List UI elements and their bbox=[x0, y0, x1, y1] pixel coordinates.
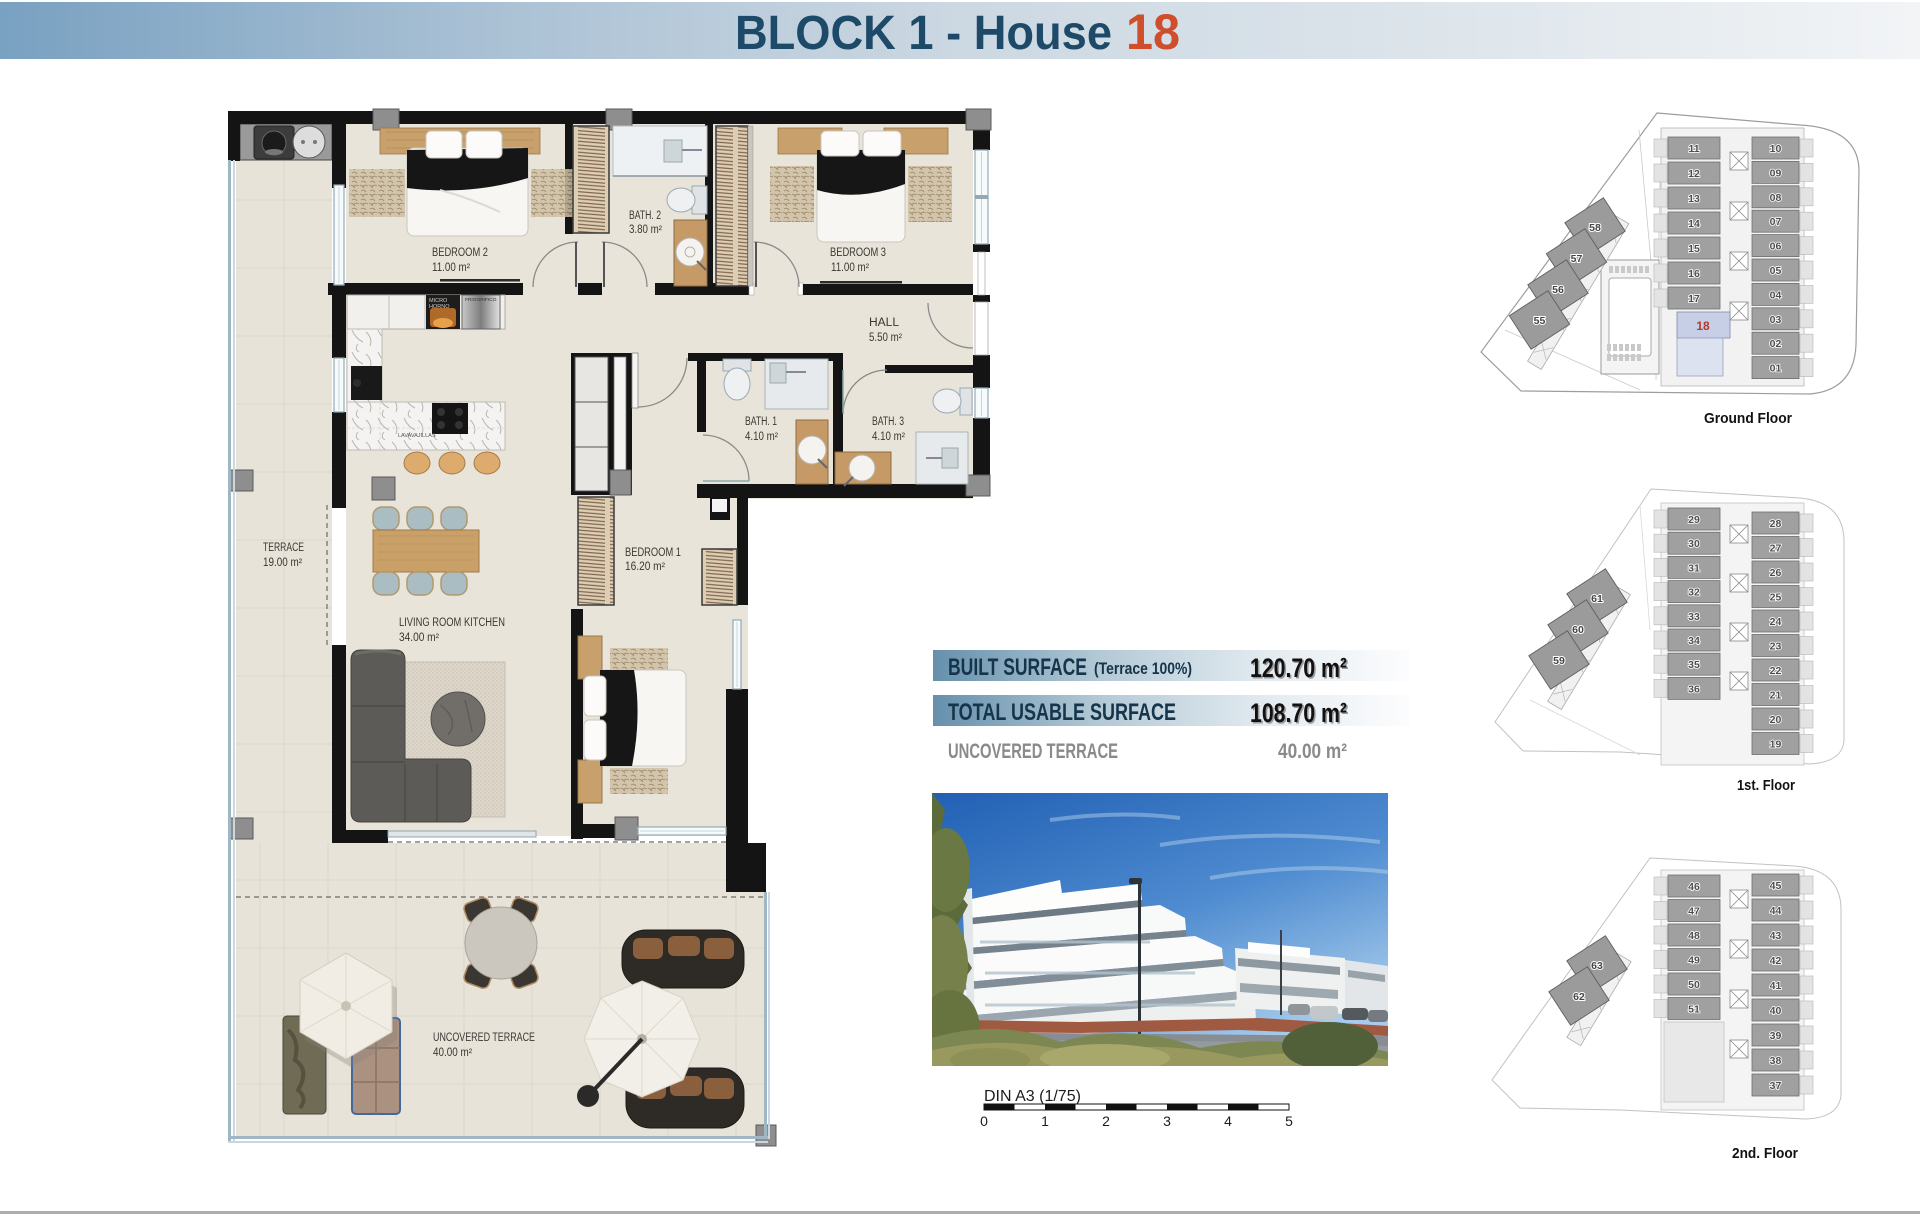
svg-text:10: 10 bbox=[1770, 143, 1782, 155]
svg-text:60: 60 bbox=[1572, 624, 1584, 636]
svg-text:TOTAL USABLE SURFACE: TOTAL USABLE SURFACE bbox=[948, 699, 1176, 726]
svg-text:61: 61 bbox=[1591, 593, 1603, 605]
svg-text:UNCOVERED TERRACE: UNCOVERED TERRACE bbox=[433, 1032, 535, 1044]
svg-text:17: 17 bbox=[1688, 293, 1700, 305]
svg-text:43: 43 bbox=[1770, 930, 1782, 942]
svg-text:23: 23 bbox=[1770, 641, 1782, 653]
svg-text:30: 30 bbox=[1688, 538, 1700, 550]
svg-text:3: 3 bbox=[1163, 1113, 1171, 1129]
svg-text:BEDROOM 1: BEDROOM 1 bbox=[625, 547, 681, 559]
svg-text:48: 48 bbox=[1688, 930, 1700, 942]
svg-text:13: 13 bbox=[1688, 193, 1700, 205]
svg-text:29: 29 bbox=[1688, 514, 1700, 526]
svg-text:04: 04 bbox=[1770, 289, 1782, 301]
svg-text:BATH. 3: BATH. 3 bbox=[872, 416, 904, 428]
svg-text:14: 14 bbox=[1688, 218, 1700, 230]
svg-text:49: 49 bbox=[1688, 955, 1700, 967]
svg-text:20: 20 bbox=[1770, 714, 1782, 726]
svg-text:19: 19 bbox=[1770, 739, 1782, 751]
svg-text:HORNO: HORNO bbox=[429, 304, 450, 310]
svg-text:36: 36 bbox=[1688, 683, 1700, 695]
svg-text:40.00 m²: 40.00 m² bbox=[433, 1047, 472, 1059]
svg-text:63: 63 bbox=[1591, 960, 1603, 972]
svg-text:11: 11 bbox=[1688, 143, 1699, 155]
svg-text:120.70 m²: 120.70 m² bbox=[1250, 653, 1347, 683]
svg-text:50: 50 bbox=[1688, 979, 1700, 991]
svg-text:56: 56 bbox=[1552, 284, 1564, 296]
svg-text:5.50 m²: 5.50 m² bbox=[869, 332, 902, 344]
svg-text:15: 15 bbox=[1688, 243, 1700, 255]
svg-text:TERRACE: TERRACE bbox=[263, 542, 304, 554]
svg-text:22: 22 bbox=[1770, 665, 1782, 677]
svg-text:BATH. 1: BATH. 1 bbox=[745, 416, 777, 428]
svg-text:33: 33 bbox=[1688, 611, 1700, 623]
svg-text:25: 25 bbox=[1770, 592, 1782, 604]
svg-text:05: 05 bbox=[1770, 265, 1782, 277]
svg-text:16.20 m²: 16.20 m² bbox=[625, 561, 665, 573]
svg-text:41: 41 bbox=[1770, 980, 1782, 992]
svg-text:DIN A3 (1/75): DIN A3 (1/75) bbox=[984, 1088, 1081, 1105]
svg-text:LIVING ROOM KITCHEN: LIVING ROOM KITCHEN bbox=[399, 617, 505, 629]
svg-text:40.00 m²: 40.00 m² bbox=[1278, 740, 1347, 763]
svg-text:21: 21 bbox=[1770, 690, 1782, 702]
svg-text:UNCOVERED TERRACE: UNCOVERED TERRACE bbox=[948, 740, 1118, 763]
svg-text:51: 51 bbox=[1688, 1004, 1700, 1016]
svg-text:12: 12 bbox=[1688, 168, 1700, 180]
svg-text:31: 31 bbox=[1688, 562, 1700, 574]
svg-text:38: 38 bbox=[1770, 1055, 1782, 1067]
svg-text:46: 46 bbox=[1688, 881, 1700, 893]
svg-text:5: 5 bbox=[1285, 1113, 1293, 1129]
svg-text:(Terrace 100%): (Terrace 100%) bbox=[1094, 659, 1192, 678]
svg-text:4: 4 bbox=[1224, 1113, 1232, 1129]
svg-text:LAVAVAJILLAS: LAVAVAJILLAS bbox=[398, 433, 436, 439]
svg-text:34.00 m²: 34.00 m² bbox=[399, 632, 439, 644]
svg-text:32: 32 bbox=[1688, 587, 1700, 599]
svg-text:07: 07 bbox=[1770, 216, 1782, 228]
svg-text:2nd. Floor: 2nd. Floor bbox=[1732, 1145, 1798, 1162]
svg-text:27: 27 bbox=[1770, 543, 1782, 555]
svg-text:Ground Floor: Ground Floor bbox=[1704, 410, 1792, 427]
svg-text:11.00 m²: 11.00 m² bbox=[432, 262, 470, 274]
svg-text:11.00 m²: 11.00 m² bbox=[831, 262, 869, 274]
svg-text:44: 44 bbox=[1770, 905, 1782, 917]
svg-text:19.00 m²: 19.00 m² bbox=[263, 557, 302, 569]
svg-text:0: 0 bbox=[980, 1113, 988, 1129]
svg-text:1st. Floor: 1st. Floor bbox=[1737, 777, 1795, 794]
svg-text:16: 16 bbox=[1688, 268, 1700, 280]
svg-text:18: 18 bbox=[1126, 4, 1180, 60]
svg-text:26: 26 bbox=[1770, 567, 1782, 579]
svg-text:4.10 m²: 4.10 m² bbox=[872, 431, 905, 443]
svg-text:45: 45 bbox=[1770, 880, 1782, 892]
svg-text:4.10 m²: 4.10 m² bbox=[745, 431, 778, 443]
svg-text:BEDROOM 3: BEDROOM 3 bbox=[830, 247, 886, 259]
svg-text:39: 39 bbox=[1770, 1030, 1782, 1042]
svg-text:BLOCK 1 - House: BLOCK 1 - House bbox=[735, 7, 1112, 60]
svg-text:01: 01 bbox=[1770, 363, 1782, 375]
svg-text:HALL: HALL bbox=[869, 317, 900, 329]
svg-text:62: 62 bbox=[1573, 991, 1585, 1003]
svg-text:40: 40 bbox=[1770, 1005, 1782, 1017]
svg-text:09: 09 bbox=[1770, 167, 1782, 179]
svg-text:58: 58 bbox=[1589, 222, 1601, 234]
svg-text:37: 37 bbox=[1770, 1080, 1782, 1092]
svg-text:3.80 m²: 3.80 m² bbox=[629, 224, 662, 236]
svg-text:1: 1 bbox=[1041, 1113, 1049, 1129]
svg-text:47: 47 bbox=[1688, 906, 1700, 918]
svg-text:03: 03 bbox=[1770, 314, 1782, 326]
svg-text:2: 2 bbox=[1102, 1113, 1110, 1129]
svg-text:08: 08 bbox=[1770, 192, 1782, 204]
svg-text:02: 02 bbox=[1770, 338, 1782, 350]
svg-text:FRIGORIFICO: FRIGORIFICO bbox=[465, 297, 497, 303]
svg-text:34: 34 bbox=[1688, 635, 1700, 647]
svg-text:06: 06 bbox=[1770, 241, 1782, 253]
svg-text:108.70 m²: 108.70 m² bbox=[1250, 698, 1347, 728]
svg-text:35: 35 bbox=[1688, 659, 1700, 671]
svg-text:42: 42 bbox=[1770, 955, 1782, 967]
svg-text:28: 28 bbox=[1770, 518, 1782, 530]
svg-text:57: 57 bbox=[1571, 253, 1583, 265]
svg-text:BATH. 2: BATH. 2 bbox=[629, 210, 661, 222]
svg-text:59: 59 bbox=[1553, 655, 1565, 667]
svg-text:BEDROOM 2: BEDROOM 2 bbox=[432, 247, 488, 259]
svg-text:BUILT SURFACE: BUILT SURFACE bbox=[948, 654, 1087, 681]
svg-text:55: 55 bbox=[1534, 315, 1546, 327]
svg-text:24: 24 bbox=[1770, 616, 1782, 628]
svg-text:18: 18 bbox=[1696, 319, 1710, 333]
